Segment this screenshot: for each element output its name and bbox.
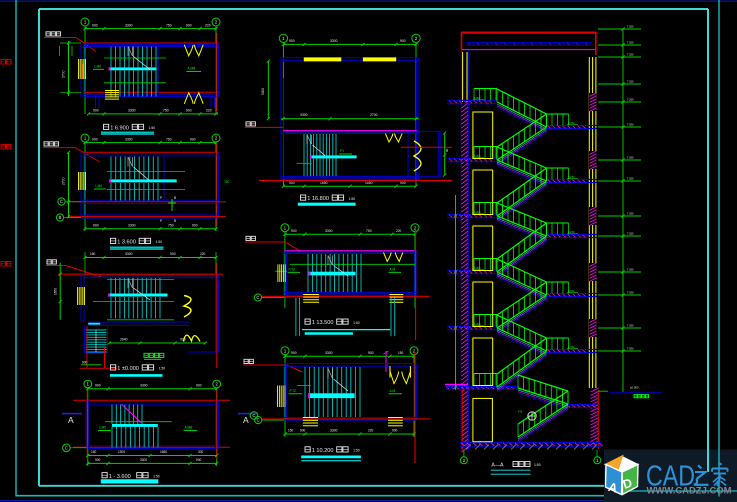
svg-text:90: 90 <box>445 148 449 152</box>
svg-text:7.200: 7.200 <box>627 176 634 180</box>
svg-text:3300: 3300 <box>128 223 136 227</box>
svg-text:5.250: 5.250 <box>568 121 575 125</box>
svg-text:750: 750 <box>166 138 172 142</box>
svg-text:150: 150 <box>288 429 294 433</box>
svg-text:5.250: 5.250 <box>568 345 575 349</box>
svg-text:6.900: 6.900 <box>474 96 481 100</box>
svg-text:220: 220 <box>206 109 212 113</box>
svg-text:7.200: 7.200 <box>627 24 634 28</box>
svg-text:7.200: 7.200 <box>627 79 634 83</box>
svg-text:P.T: P.T <box>340 149 345 153</box>
svg-text:7.200: 7.200 <box>627 346 634 350</box>
svg-text:900: 900 <box>392 429 398 433</box>
svg-text:7.200: 7.200 <box>627 323 634 327</box>
svg-text:7.200: 7.200 <box>627 97 634 101</box>
svg-text:1650: 1650 <box>160 450 167 454</box>
svg-text:900: 900 <box>400 181 406 185</box>
svg-text:7.200: 7.200 <box>627 211 634 215</box>
svg-text:3300: 3300 <box>330 429 338 433</box>
svg-text:3300: 3300 <box>330 39 338 43</box>
svg-text:1.M0: 1.M0 <box>95 184 102 188</box>
svg-text:F.B: F.B <box>518 410 522 414</box>
svg-text:A.MB: A.MB <box>188 67 196 71</box>
svg-text:750: 750 <box>168 223 174 227</box>
svg-text:3300: 3300 <box>140 383 148 387</box>
svg-text:1:50: 1:50 <box>353 449 360 453</box>
svg-text:1650: 1650 <box>54 288 58 295</box>
svg-text:1500: 1500 <box>118 450 125 454</box>
svg-text:1650: 1650 <box>365 181 373 185</box>
svg-text:150: 150 <box>91 450 97 454</box>
svg-text:1:50: 1:50 <box>159 367 166 371</box>
svg-text:5400: 5400 <box>261 88 265 95</box>
svg-text:900: 900 <box>95 458 101 462</box>
svg-text:WWW.CADZJ.COM: WWW.CADZJ.COM <box>647 485 732 496</box>
svg-text:300: 300 <box>198 450 204 454</box>
svg-text:900: 900 <box>186 109 192 113</box>
svg-text:900: 900 <box>400 39 406 43</box>
svg-text:750: 750 <box>224 180 230 184</box>
svg-text:7.200: 7.200 <box>627 52 634 56</box>
svg-text:1 6.900: 1 6.900 <box>110 126 129 132</box>
svg-text:900: 900 <box>289 181 295 185</box>
svg-text:A—A: A—A <box>491 463 504 469</box>
svg-text:C: C <box>60 199 63 204</box>
svg-text:1 10.200: 1 10.200 <box>312 448 334 454</box>
svg-text:1 13.500: 1 13.500 <box>312 320 334 326</box>
svg-text:P.TZ: P.TZ <box>289 268 296 272</box>
svg-text:A.M: A.M <box>390 389 396 393</box>
svg-text:C: C <box>65 445 68 450</box>
svg-text:C: C <box>257 418 260 423</box>
svg-text:6.900: 6.900 <box>474 322 481 326</box>
svg-text:P.TZ: P.TZ <box>290 389 297 393</box>
svg-text:7.200: 7.200 <box>627 155 634 159</box>
svg-text:7.200: 7.200 <box>627 231 634 235</box>
svg-text:C: C <box>252 413 255 418</box>
svg-text:B: B <box>59 215 62 220</box>
svg-text:3300: 3300 <box>325 229 333 233</box>
svg-text:900: 900 <box>291 351 297 355</box>
svg-text:±0.000: ±0.000 <box>630 386 639 390</box>
svg-text:900: 900 <box>291 229 297 233</box>
svg-text:3300: 3300 <box>125 138 133 142</box>
svg-text:2700: 2700 <box>62 177 66 185</box>
svg-text:900: 900 <box>196 383 202 387</box>
svg-text:7.200: 7.200 <box>627 267 634 271</box>
svg-text:900: 900 <box>92 24 98 28</box>
svg-text:220: 220 <box>205 24 211 28</box>
svg-text:900: 900 <box>180 338 186 342</box>
svg-text:750: 750 <box>166 24 172 28</box>
svg-text:7.200: 7.200 <box>627 290 634 294</box>
svg-text:1650: 1650 <box>320 181 328 185</box>
svg-text:900: 900 <box>190 138 196 142</box>
svg-text:3300: 3300 <box>125 252 133 256</box>
svg-text:750: 750 <box>163 109 169 113</box>
svg-text:3300: 3300 <box>128 109 136 113</box>
svg-text:1.M0: 1.M0 <box>99 426 106 430</box>
svg-text:900: 900 <box>82 361 88 365</box>
svg-text:900: 900 <box>289 39 295 43</box>
svg-text:150: 150 <box>398 351 404 355</box>
svg-text:900: 900 <box>93 223 99 227</box>
svg-text:3300: 3300 <box>125 24 133 28</box>
svg-text:3300: 3300 <box>325 351 333 355</box>
svg-text:900: 900 <box>186 24 192 28</box>
svg-text:220: 220 <box>368 429 374 433</box>
svg-text:2700: 2700 <box>62 70 66 78</box>
svg-text:C: C <box>256 295 259 300</box>
svg-text:220: 220 <box>396 229 402 233</box>
svg-text:7.200: 7.200 <box>627 122 634 126</box>
svg-text:900: 900 <box>92 138 98 142</box>
svg-text:900: 900 <box>196 458 202 462</box>
svg-text:900: 900 <box>95 383 101 387</box>
svg-text:3300: 3300 <box>300 113 308 117</box>
svg-text:150: 150 <box>90 252 96 256</box>
svg-text:6.900: 6.900 <box>474 154 481 158</box>
svg-text:5.250: 5.250 <box>568 289 575 293</box>
svg-text:A.MB: A.MB <box>185 426 193 430</box>
svg-text:1 16.800: 1 16.800 <box>307 196 329 202</box>
svg-text:2700: 2700 <box>370 113 378 117</box>
svg-text:1:50: 1:50 <box>349 197 356 201</box>
svg-text:1:50: 1:50 <box>149 126 156 130</box>
svg-text:900: 900 <box>170 252 176 256</box>
svg-text:1.M0: 1.M0 <box>94 65 101 69</box>
svg-text:220: 220 <box>200 252 206 256</box>
svg-text:6.900: 6.900 <box>474 266 481 270</box>
svg-text:1:50: 1:50 <box>153 475 160 479</box>
svg-text:900: 900 <box>300 429 306 433</box>
svg-text:900: 900 <box>93 109 99 113</box>
svg-text:A.M: A.M <box>390 268 396 272</box>
svg-text:2640: 2640 <box>120 338 128 342</box>
svg-text:5.250: 5.250 <box>568 175 575 179</box>
svg-text:900: 900 <box>368 351 374 355</box>
svg-text:A: A <box>243 415 249 425</box>
svg-text:A: A <box>68 415 74 425</box>
svg-text:7.200: 7.200 <box>627 40 634 44</box>
svg-text:1:50: 1:50 <box>156 240 163 244</box>
svg-text:6.900: 6.900 <box>474 210 481 214</box>
svg-text:750: 750 <box>366 229 372 233</box>
svg-text:3300: 3300 <box>140 458 147 462</box>
svg-text:5.250: 5.250 <box>568 230 575 234</box>
svg-text:1 - 3.600: 1 - 3.600 <box>109 474 131 480</box>
svg-text:1:50: 1:50 <box>534 463 541 467</box>
svg-text:900: 900 <box>192 223 198 227</box>
svg-text:1:50: 1:50 <box>353 321 360 325</box>
svg-text:1 3.600: 1 3.600 <box>117 240 136 246</box>
svg-text:1 ±0.000: 1 ±0.000 <box>117 366 139 372</box>
